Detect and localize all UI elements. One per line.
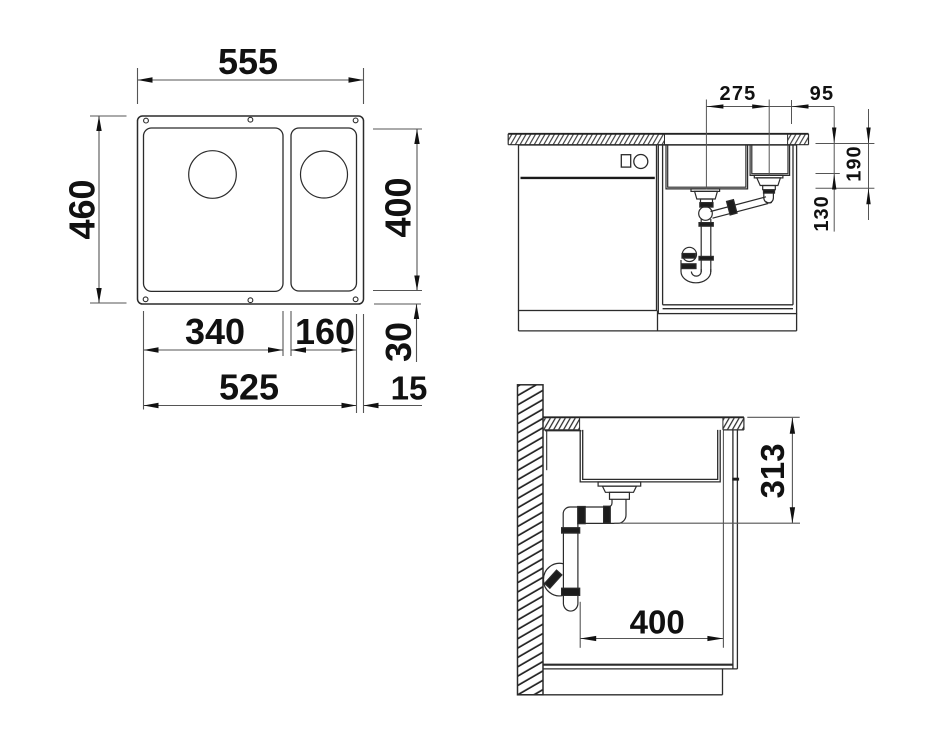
svg-text:30: 30 [378, 322, 419, 362]
svg-text:400: 400 [630, 604, 685, 641]
svg-text:525: 525 [219, 367, 279, 408]
svg-text:313: 313 [754, 443, 791, 498]
svg-text:460: 460 [62, 179, 103, 239]
svg-text:190: 190 [844, 145, 866, 181]
svg-text:555: 555 [218, 41, 278, 82]
svg-text:130: 130 [811, 195, 833, 231]
svg-text:340: 340 [185, 311, 245, 352]
svg-text:275: 275 [720, 83, 757, 105]
svg-text:15: 15 [391, 370, 428, 407]
svg-text:160: 160 [295, 311, 355, 352]
svg-text:400: 400 [378, 177, 419, 237]
svg-text:95: 95 [810, 83, 835, 105]
